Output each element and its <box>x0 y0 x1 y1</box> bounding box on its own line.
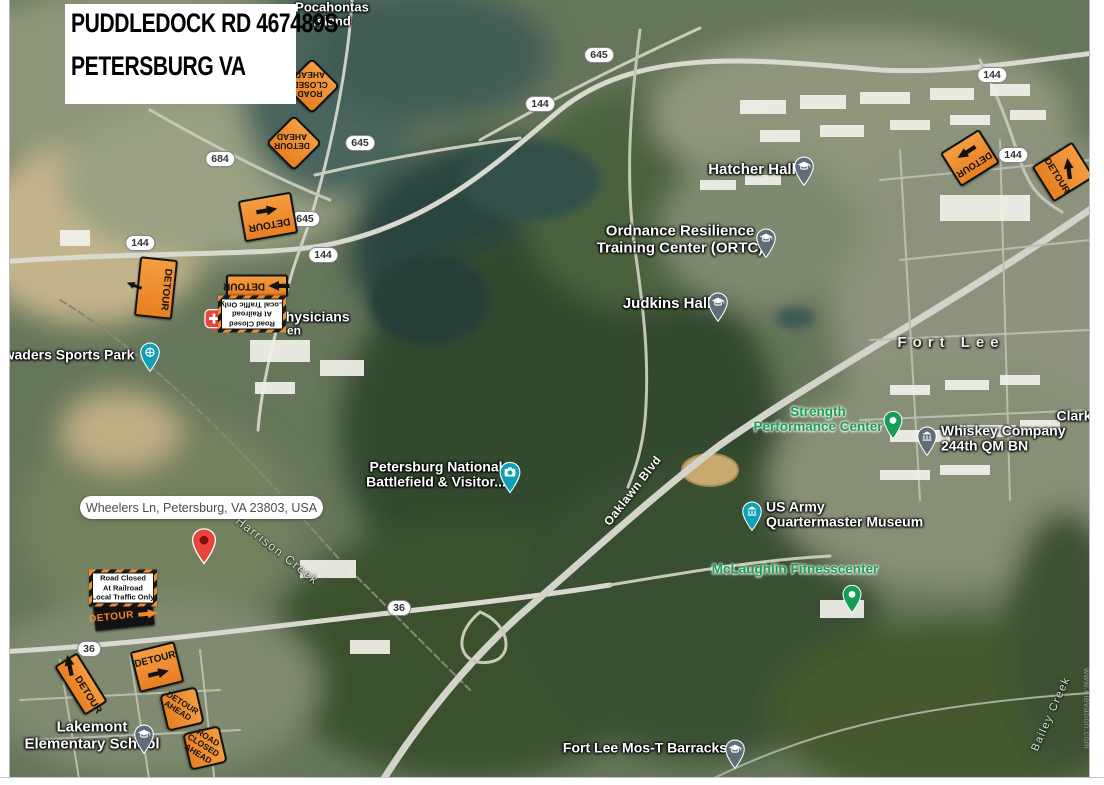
place-label-fort-lee: Fort Lee <box>897 335 1004 352</box>
title-card: PUDDLEDOCK RD 467489S PETERSBURG VA <box>65 4 296 104</box>
sign-road-closed-ahead-tilted: ROADCLOSEDAHEAD <box>179 722 227 770</box>
sign-detour-vertical: DETOUR <box>134 256 178 320</box>
route-shield-144: 144 <box>125 235 155 251</box>
place-label-us-army-quartermaster-museum[interactable]: US ArmyQuartermaster Museum <box>766 500 923 531</box>
address-info-bubble[interactable]: Wheelers Ln, Petersburg, VA 23803, USA <box>80 496 323 519</box>
place-label-clark-clipped[interactable]: Clark <box>1056 408 1091 423</box>
sign-road-closed-placard: Road ClosedAt RailroadLocal Traffic Only <box>89 570 157 607</box>
detour-arrow-icon <box>254 202 280 219</box>
place-label-swaders-sports-park[interactable]: waders Sports Park <box>4 347 135 362</box>
route-shield-684: 684 <box>205 151 235 167</box>
place-label-mclaughlin-fitnesscenter[interactable]: McLaughlin Fitnesscenter <box>712 563 879 578</box>
route-shield-144: 144 <box>525 96 555 112</box>
marker-judkins-hall-school[interactable] <box>707 292 729 322</box>
place-label-physicians[interactable]: Physicians <box>276 309 349 324</box>
detour-arrow-icon <box>267 280 291 293</box>
route-shield-144: 144 <box>998 147 1028 163</box>
detour-arrow-icon <box>58 652 81 679</box>
route-shield-645: 645 <box>584 47 614 63</box>
satellite-map-canvas[interactable]: PocahontasIslandHatcher HallOrdnance Res… <box>0 0 1104 785</box>
sign-road-closed-placard-upsidedown: Road ClosedAt RailroadLocal Traffic Only <box>218 296 286 333</box>
marker-ortc-school[interactable] <box>755 228 777 258</box>
detour-arrow-icon <box>136 607 159 621</box>
route-shield-36: 36 <box>77 641 101 657</box>
marker-swaders-sports-park[interactable] <box>139 342 161 372</box>
marker-wheelers-ln-destination[interactable] <box>191 528 217 565</box>
marker-strength-center-pin[interactable] <box>883 411 904 440</box>
place-label-strength-performance-center[interactable]: StrengthPerformance Center <box>753 405 882 435</box>
title-city: PETERSBURG VA <box>71 51 242 82</box>
detour-arrow-icon <box>125 280 144 291</box>
place-label-physicians-fragment: en <box>287 324 301 337</box>
route-shield-144: 144 <box>308 247 338 263</box>
place-label-judkins-hall[interactable]: Judkins Hall <box>623 296 711 313</box>
watermark-url: www.elevation.com <box>1082 668 1092 749</box>
page-border-bottom <box>0 777 1104 785</box>
page-border-left <box>0 0 10 785</box>
place-label-whiskey-company-244th-qm-bn[interactable]: Whiskey Company244th QM BN <box>941 424 1065 455</box>
route-shield-36: 36 <box>387 600 411 616</box>
marker-quartermaster-museum[interactable] <box>741 501 763 531</box>
marker-lakemont-school[interactable] <box>133 724 155 754</box>
place-label-ordnance-resilience-training-center[interactable]: Ordnance ResilienceTraining Center (ORTC… <box>597 224 764 257</box>
place-label-hatcher-hall[interactable]: Hatcher Hall <box>708 162 796 179</box>
marker-hatcher-hall-school[interactable] <box>793 156 815 186</box>
marker-mclaughlin-pin[interactable] <box>842 585 863 614</box>
marker-battlefield-visitor-center[interactable] <box>499 461 522 493</box>
marker-mos-t-barracks-school[interactable] <box>724 739 746 769</box>
sign-detour-ahead-upsidedown: DETOURAHEAD <box>266 115 318 167</box>
place-label-petersburg-national-battlefield[interactable]: Petersburg NationalBattlefield & Visitor… <box>366 460 506 491</box>
route-shield-144: 144 <box>977 67 1007 83</box>
map-screenshot: { "title_card": {"line1": "PUDDLEDOCK RD… <box>0 0 1104 785</box>
marker-whiskey-company-museum[interactable] <box>916 426 938 456</box>
title-road-name: PUDDLEDOCK RD 467489S <box>71 8 242 39</box>
place-label-fort-lee-mos-t-barracks[interactable]: Fort Lee Mos-T Barracks <box>563 740 727 755</box>
route-shield-645: 645 <box>345 135 375 151</box>
sign-detour-flipped-b: DETOUR <box>226 275 288 298</box>
